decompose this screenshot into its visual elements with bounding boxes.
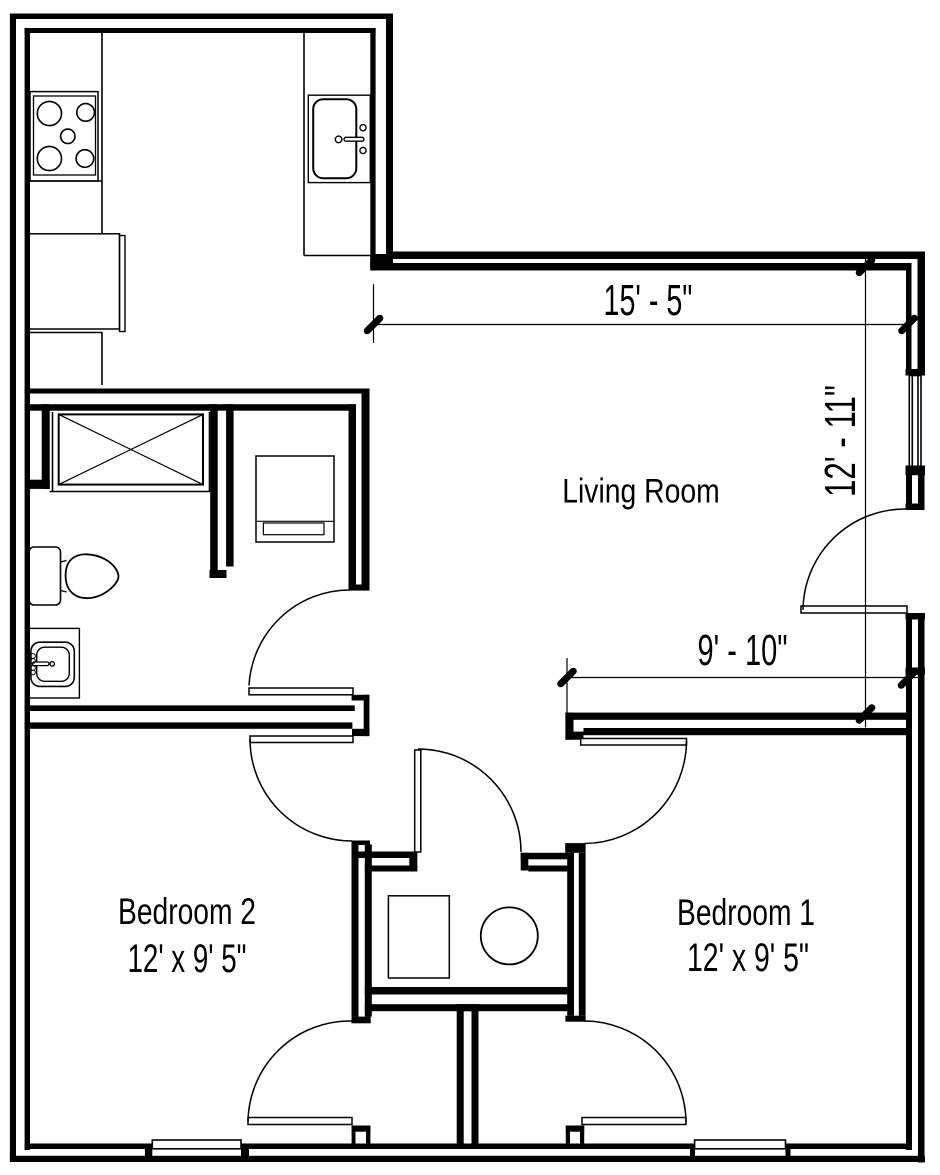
svg-text:Bedroom 1: Bedroom 1 (677, 892, 815, 933)
svg-text:Living Room: Living Room (562, 473, 720, 511)
svg-text:Bedroom 2: Bedroom 2 (118, 891, 256, 932)
svg-text:12' x 9' 5": 12' x 9' 5" (687, 936, 809, 980)
svg-text:15' - 5": 15' - 5" (604, 276, 693, 325)
svg-text:9' - 10": 9' - 10" (698, 626, 788, 675)
svg-text:12' - 11": 12' - 11" (816, 385, 865, 497)
svg-text:12' x 9' 5": 12' x 9' 5" (128, 937, 247, 981)
